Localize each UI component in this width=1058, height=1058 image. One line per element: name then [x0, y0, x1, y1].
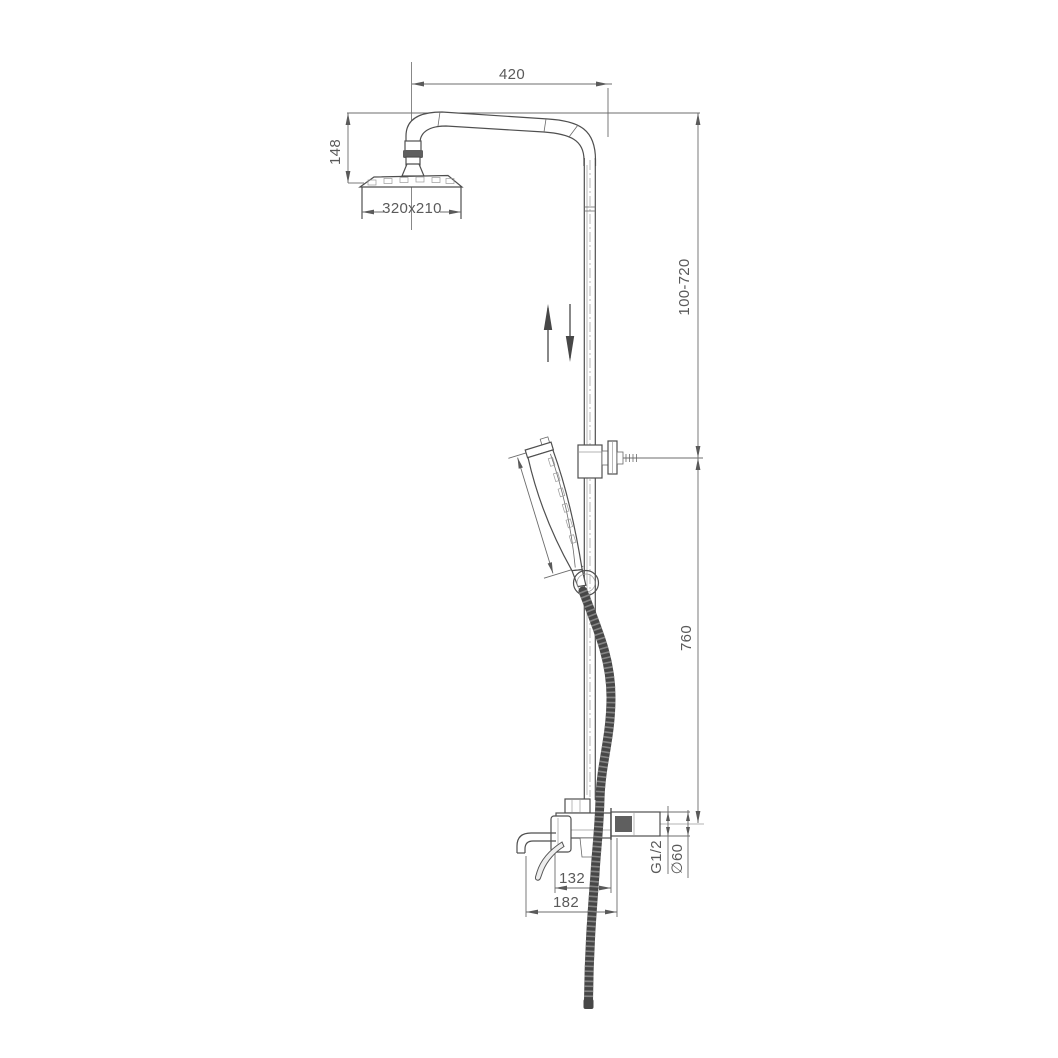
height-adjust-arrow-down [566, 336, 574, 362]
dim-760-arrow-bottom [696, 811, 701, 823]
dim-d60-label: ∅60 [669, 844, 686, 875]
spout-outer-edge [517, 833, 556, 853]
joint-nut [405, 141, 421, 151]
dim-182-label: 182 [553, 894, 579, 911]
dim-d60-arrow-top [686, 812, 690, 821]
dim-420: 420 [412, 66, 612, 87]
dim-148: 148 [327, 113, 350, 183]
dim-100-720-label: 100-720 [676, 258, 693, 315]
dim-420-label: 420 [499, 66, 525, 83]
dim-760-arrow-top [696, 458, 701, 470]
arm-body-fill [406, 112, 596, 166]
dim-right-column: 100-720 760 [623, 113, 703, 823]
dim-320x210-label: 320x210 [382, 200, 442, 217]
dim-g12-arrow-bottom [666, 827, 670, 836]
slider-bracket-assembly [578, 441, 637, 478]
mixer-assembly [517, 799, 660, 880]
shower-column-technical-drawing: 420 148 100-720 760 132 182 [0, 0, 1058, 1058]
riser-union-nut [565, 799, 590, 813]
shower-head-ball-joint [402, 141, 424, 176]
dim-182-arrow-right [605, 910, 617, 915]
drawing-canvas: 420 148 100-720 760 132 182 [0, 0, 1058, 1058]
dim-g12-arrow-top [666, 812, 670, 821]
wall-connector-dark-section [615, 816, 632, 832]
dim-320x210-arrow-left [362, 210, 374, 215]
slider-knob-stub [617, 452, 623, 464]
dim-760-label: 760 [678, 625, 695, 651]
riser-pipe [584, 158, 595, 800]
shower-arm [406, 112, 596, 166]
overhead-shower-head: 320x210 [360, 176, 462, 220]
slider-bracket [578, 445, 602, 478]
height-adjust-arrows [544, 304, 574, 362]
dim-132-label: 132 [559, 870, 585, 887]
dim-100-720-arrow-top [696, 113, 701, 125]
dim-d60-arrow-bottom [686, 827, 690, 836]
dim-148-label: 148 [327, 139, 344, 165]
dim-254-ext-top [508, 452, 528, 458]
dim-g12-label: G1/2 [648, 840, 665, 874]
dim-254-arrow-bottom [548, 562, 555, 574]
dim-420-arrow-left [412, 82, 424, 87]
dim-182-arrow-left [526, 910, 538, 915]
slider-knob-stem [602, 451, 608, 465]
dim-148-arrow-bottom [346, 171, 351, 183]
dim-420-arrow-right [596, 82, 608, 87]
dim-254-arrow-top [515, 457, 522, 469]
dim-100-720-arrow-bottom [696, 446, 701, 458]
dim-148-arrow-top [346, 113, 351, 125]
hose-end-fitting [584, 999, 594, 1009]
joint-mount [402, 164, 424, 176]
dim-320x210-arrow-right [449, 210, 461, 215]
height-adjust-arrow-up [544, 304, 552, 330]
dim-132-arrow-right [599, 886, 611, 891]
